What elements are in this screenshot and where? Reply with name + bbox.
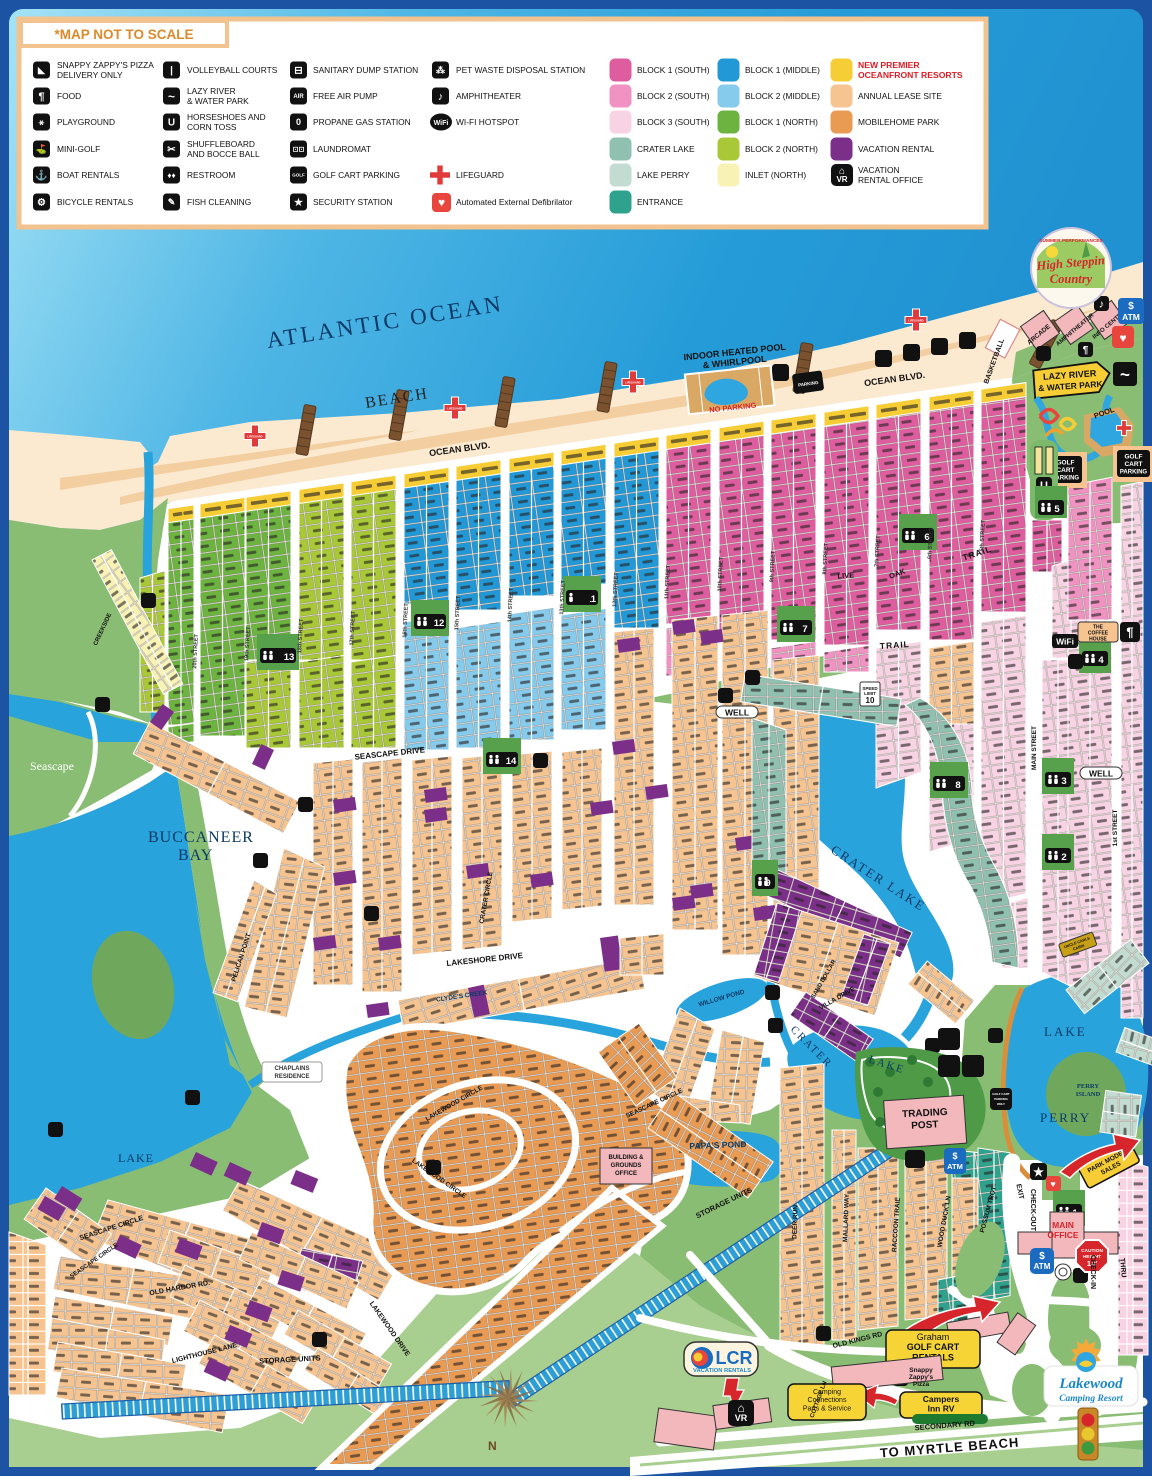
svg-text:¶: ¶ xyxy=(1083,345,1089,356)
svg-text:CHECK-IN: CHECK-IN xyxy=(1089,1255,1096,1289)
svg-text:MINI-GOLF: MINI-GOLF xyxy=(57,144,100,154)
svg-text:PERRY: PERRY xyxy=(1040,1110,1091,1125)
svg-text:¶: ¶ xyxy=(1126,625,1133,640)
svg-text:★: ★ xyxy=(294,198,303,209)
svg-text:HORSESHOES AND: HORSESHOES AND xyxy=(187,112,266,122)
svg-text:9: 9 xyxy=(765,878,770,889)
svg-text:Seascape: Seascape xyxy=(30,759,74,773)
svg-text:$: $ xyxy=(1128,301,1134,312)
svg-text:♥: ♥ xyxy=(438,196,445,210)
svg-text:BICYCLE RENTALS: BICYCLE RENTALS xyxy=(57,197,134,207)
svg-text:CART: CART xyxy=(1056,467,1074,474)
svg-text:RESTROOM: RESTROOM xyxy=(187,170,235,180)
svg-text:GROUNDS: GROUNDS xyxy=(611,1163,642,1169)
svg-text:AIR: AIR xyxy=(293,94,304,100)
svg-text:Graham: Graham xyxy=(917,1332,950,1342)
svg-text:LAKE: LAKE xyxy=(118,1151,154,1165)
svg-text:WELL: WELL xyxy=(1089,769,1113,779)
svg-text:& WATER PARK: & WATER PARK xyxy=(187,96,249,106)
svg-text:CHECK-OUT: CHECK-OUT xyxy=(1029,1189,1036,1232)
svg-text:GOLF CART: GOLF CART xyxy=(992,1092,1010,1096)
svg-text:Automated External Defibrilato: Automated External Defibrilator xyxy=(456,197,573,207)
svg-text:ATM: ATM xyxy=(1122,312,1140,322)
svg-text:BLOCK 1 (SOUTH): BLOCK 1 (SOUTH) xyxy=(637,65,710,75)
svg-text:~: ~ xyxy=(1120,365,1130,384)
svg-text:CART: CART xyxy=(1124,461,1142,468)
svg-text:✂: ✂ xyxy=(167,145,176,156)
svg-text:VR: VR xyxy=(836,175,847,184)
svg-text:♥: ♥ xyxy=(1050,1179,1055,1189)
svg-text:BLOCK 2 (NORTH): BLOCK 2 (NORTH) xyxy=(745,144,818,154)
svg-text:SECURITY STATION: SECURITY STATION xyxy=(313,197,393,207)
svg-text:⊡⊡: ⊡⊡ xyxy=(293,147,305,154)
svg-text:CRATER LAKE: CRATER LAKE xyxy=(637,144,695,154)
svg-text:GOLF CART PARKING: GOLF CART PARKING xyxy=(313,170,400,180)
svg-text:FISH CLEANING: FISH CLEANING xyxy=(187,197,251,207)
svg-text:1st STREET: 1st STREET xyxy=(1112,810,1119,847)
svg-text:AND BOCCE BALL: AND BOCCE BALL xyxy=(187,149,260,159)
svg-text:OFFICE: OFFICE xyxy=(615,1171,637,1177)
svg-text:VACATION: VACATION xyxy=(858,165,900,175)
svg-text:BUCCANEER: BUCCANEER xyxy=(148,829,254,846)
svg-text:Parts & Service: Parts & Service xyxy=(803,1405,851,1412)
svg-text:LIFEGUARD: LIFEGUARD xyxy=(908,319,923,323)
svg-text:GOLF: GOLF xyxy=(1056,460,1074,467)
svg-text:BLOCK 1 (NORTH): BLOCK 1 (NORTH) xyxy=(745,117,818,127)
svg-text:ANNUAL LEASE SITE: ANNUAL LEASE SITE xyxy=(858,91,942,101)
svg-text:⚓: ⚓ xyxy=(35,169,47,182)
svg-text:BLOCK 2 (SOUTH): BLOCK 2 (SOUTH) xyxy=(637,91,710,101)
svg-text:SANITARY DUMP STATION: SANITARY DUMP STATION xyxy=(313,65,418,75)
svg-text:LAUNDROMAT: LAUNDROMAT xyxy=(313,144,371,154)
svg-text:14: 14 xyxy=(506,756,517,767)
svg-text:*MAP NOT TO SCALE: *MAP NOT TO SCALE xyxy=(54,27,193,42)
svg-text:N: N xyxy=(488,1439,497,1453)
svg-text:U: U xyxy=(168,118,175,129)
svg-text:Pizza: Pizza xyxy=(913,1381,930,1388)
svg-text:♦♦: ♦♦ xyxy=(167,171,175,180)
svg-text:LIFEGUARD: LIFEGUARD xyxy=(447,407,462,411)
svg-text:¶: ¶ xyxy=(38,91,44,103)
svg-text:ATM: ATM xyxy=(947,1162,963,1171)
svg-text:FOOD: FOOD xyxy=(57,91,81,101)
svg-text:PET WASTE DISPOSAL STATION: PET WASTE DISPOSAL STATION xyxy=(456,65,585,75)
svg-text:SNAPPY ZAPPY'S PIZZA: SNAPPY ZAPPY'S PIZZA xyxy=(57,60,154,70)
svg-text:WiFi: WiFi xyxy=(1056,637,1074,647)
svg-text:8: 8 xyxy=(955,780,960,791)
svg-text:5: 5 xyxy=(1054,504,1060,515)
svg-text:ISLAND: ISLAND xyxy=(1076,1091,1101,1098)
svg-text:DEER RUN: DEER RUN xyxy=(791,1205,799,1239)
svg-text:FREE AIR PUMP: FREE AIR PUMP xyxy=(313,91,378,101)
svg-text:PERRY: PERRY xyxy=(1077,1083,1099,1090)
svg-text:◣: ◣ xyxy=(37,65,46,75)
svg-text:ATM: ATM xyxy=(1034,1262,1051,1271)
svg-text:HOUSE: HOUSE xyxy=(1089,637,1107,643)
svg-text:POST: POST xyxy=(911,1119,939,1131)
svg-text:Connections: Connections xyxy=(808,1397,847,1404)
svg-text:7: 7 xyxy=(802,624,807,635)
svg-text:⁂: ⁂ xyxy=(436,64,445,75)
svg-text:MAIN STREET: MAIN STREET xyxy=(1031,726,1038,770)
svg-text:TRAIL: TRAIL xyxy=(879,639,910,651)
svg-text:$: $ xyxy=(952,1151,957,1161)
svg-text:PAPA'S POND: PAPA'S POND xyxy=(689,1139,746,1151)
svg-text:2: 2 xyxy=(1061,852,1066,863)
svg-text:BAY: BAY xyxy=(178,847,213,864)
svg-text:LAZY RIVER: LAZY RIVER xyxy=(187,86,236,96)
svg-text:CAUTION: CAUTION xyxy=(1081,1248,1103,1254)
svg-text:GOLF: GOLF xyxy=(1124,454,1142,461)
svg-text:BLOCK 2 (MIDDLE): BLOCK 2 (MIDDLE) xyxy=(745,91,820,101)
svg-text:Zappy's: Zappy's xyxy=(909,1374,934,1381)
svg-text:|: | xyxy=(170,66,173,77)
svg-text:PARKING: PARKING xyxy=(1120,470,1148,476)
svg-text:INLET (NORTH): INLET (NORTH) xyxy=(745,170,806,180)
svg-text:VACATION RENTAL: VACATION RENTAL xyxy=(858,144,935,154)
svg-text:CHAPLAINS: CHAPLAINS xyxy=(274,1066,309,1072)
svg-text:GOLF CART: GOLF CART xyxy=(907,1342,960,1352)
svg-text:PARKING: PARKING xyxy=(994,1097,1008,1101)
svg-text:BUILDING &: BUILDING & xyxy=(609,1155,645,1161)
svg-text:CORN TOSS: CORN TOSS xyxy=(187,122,237,132)
svg-text:GOLF: GOLF xyxy=(292,173,305,178)
svg-text:VR: VR xyxy=(735,1413,748,1423)
svg-text:Lakewood: Lakewood xyxy=(1058,1376,1123,1392)
svg-text:RESIDENCE: RESIDENCE xyxy=(274,1074,309,1080)
svg-text:AMPHITHEATER: AMPHITHEATER xyxy=(456,91,521,101)
svg-text:⚙: ⚙ xyxy=(37,198,46,209)
svg-text:LIVE: LIVE xyxy=(837,570,854,580)
svg-text:SUMMER PERFORMANCES: SUMMER PERFORMANCES xyxy=(1039,238,1103,244)
svg-text:OFFICE: OFFICE xyxy=(1047,1230,1078,1240)
svg-text:WiFi: WiFi xyxy=(434,120,449,127)
svg-text:BOAT RENTALS: BOAT RENTALS xyxy=(57,170,120,180)
svg-text:SHUFFLEBOARD: SHUFFLEBOARD xyxy=(187,139,255,149)
svg-text:PLAYGROUND: PLAYGROUND xyxy=(57,117,115,127)
svg-text:♪: ♪ xyxy=(1099,298,1105,310)
svg-text:WI-FI HOTSPOT: WI-FI HOTSPOT xyxy=(456,117,519,127)
svg-text:10: 10 xyxy=(866,696,875,705)
svg-text:RENTAL OFFICE: RENTAL OFFICE xyxy=(858,175,924,185)
svg-text:⊟: ⊟ xyxy=(294,66,302,77)
svg-text:PROPANE GAS STATION: PROPANE GAS STATION xyxy=(313,117,411,127)
svg-text:VOLLEYBALL COURTS: VOLLEYBALL COURTS xyxy=(187,65,278,75)
svg-text:Country: Country xyxy=(1050,272,1093,286)
svg-text:LIFEGUARD: LIFEGUARD xyxy=(456,170,504,180)
svg-text:Inn RV: Inn RV xyxy=(928,1404,955,1414)
svg-text:LCR: LCR xyxy=(716,1348,753,1368)
svg-text:MOBILEHOME PARK: MOBILEHOME PARK xyxy=(858,117,940,127)
svg-text:NEW PREMIER: NEW PREMIER xyxy=(858,60,920,70)
svg-text:ONLY: ONLY xyxy=(997,1102,1005,1106)
svg-text:Camping Resort: Camping Resort xyxy=(1059,1394,1123,1404)
svg-text:13: 13 xyxy=(284,652,295,663)
svg-text:12: 12 xyxy=(434,618,445,629)
svg-text:0: 0 xyxy=(296,117,301,127)
svg-text:MAIN: MAIN xyxy=(1052,1220,1074,1230)
svg-text:DELIVERY ONLY: DELIVERY ONLY xyxy=(57,70,123,80)
svg-text:$: $ xyxy=(1039,1251,1045,1262)
svg-text:4: 4 xyxy=(1098,655,1104,666)
svg-text:LAKE PERRY: LAKE PERRY xyxy=(637,170,690,180)
svg-text:BLOCK 1 (MIDDLE): BLOCK 1 (MIDDLE) xyxy=(745,65,820,75)
svg-text:♪: ♪ xyxy=(438,91,444,103)
svg-text:VACATION RENTALS: VACATION RENTALS xyxy=(693,1368,751,1374)
svg-text:~: ~ xyxy=(168,89,175,103)
svg-text:♥: ♥ xyxy=(1119,331,1126,345)
svg-text:★: ★ xyxy=(1033,1165,1044,1179)
svg-text:✎: ✎ xyxy=(168,197,176,207)
svg-text:⛳: ⛳ xyxy=(36,143,47,155)
svg-text:3: 3 xyxy=(1061,776,1066,787)
svg-text:LIFEGUARD: LIFEGUARD xyxy=(247,435,262,439)
svg-text:LAKE: LAKE xyxy=(1044,1024,1087,1039)
svg-text:Campers: Campers xyxy=(923,1394,960,1404)
svg-text:ENTRANCE: ENTRANCE xyxy=(637,197,683,207)
svg-text:BLOCK 3 (SOUTH): BLOCK 3 (SOUTH) xyxy=(637,117,710,127)
svg-text:⚹: ⚹ xyxy=(39,117,45,127)
svg-text:WELL: WELL xyxy=(725,708,749,718)
svg-text:LIFEGUARD: LIFEGUARD xyxy=(625,381,640,385)
svg-text:Snappy: Snappy xyxy=(909,1367,933,1374)
svg-text:OCEANFRONT RESORTS: OCEANFRONT RESORTS xyxy=(858,70,963,80)
